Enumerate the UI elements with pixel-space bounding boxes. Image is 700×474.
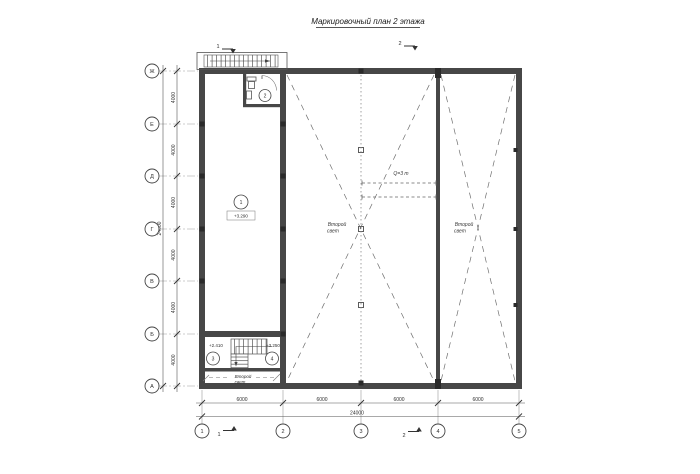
dim-left-1: 4000 [171,92,177,103]
external-stair [197,53,287,70]
toilet-icon [247,77,256,81]
section-mark-1-top: 1 [216,44,235,54]
room-3-number: 3 [212,357,215,363]
section-2-bottom-label: 2 [402,433,405,439]
section-1-top-label: 1 [216,44,219,50]
drawing-sheet: Маркировочный план 2 этажа [0,0,700,474]
crane-capacity-label: Q=3 т [393,171,408,177]
void-cross-braces [287,75,515,381]
section-2-top-label: 2 [398,41,401,47]
dim-bottom-total: 24000 [350,411,364,417]
room-1-marker: 1 +3.290 [227,195,255,220]
wall-second-light-strip [199,368,286,372]
dim-bottom-3: 6000 [393,397,404,403]
dim-left-2: 4000 [171,144,177,155]
wc-room: 2 [243,74,280,107]
second-light-right-line2: свет [454,229,466,235]
room-4-number: 4 [271,357,274,363]
page-title: Маркировочный план 2 этажа [311,17,425,26]
wall-axis4 [436,74,440,383]
axis-label-zh: Ж [149,69,154,75]
dim-left-3: 4000 [171,197,177,208]
axis-label-2: 2 [281,429,284,435]
dim-left-4: 4000 [171,249,177,260]
room-4-level: +3.250 [266,343,280,348]
stair-room: +2.410 3 +3.250 4 [207,339,281,368]
second-light-left-line2: свет [327,229,339,235]
axis-label-5: 5 [517,429,520,435]
room-3-level: +2.410 [209,343,223,348]
dim-left-5: 4000 [171,302,177,313]
axis-label-4: 4 [436,429,439,435]
left-axis-bubbles: Ж Е Д Г В Б А [145,64,159,393]
dim-bottom-1: 6000 [236,397,247,403]
section-1-bottom-label: 1 [217,432,220,438]
axis-label-g: Г [151,227,154,233]
dim-bottom-4: 6000 [472,397,483,403]
wall-stair-room-top [199,331,286,337]
axis-label-v: В [150,279,154,285]
room-1-level: +3.290 [234,214,248,219]
sink-icon [247,91,252,99]
dim-bottom-2: 6000 [316,397,327,403]
second-light-strip-line2: свет [235,380,246,385]
room-1-number: 1 [240,200,243,206]
stair-lower-flight [231,354,248,368]
floor-plan-svg: Маркировочный план 2 этажа [0,0,700,474]
bottom-axis-bubbles: 1 2 3 4 5 [195,424,526,438]
axis-label-3: 3 [359,429,362,435]
left-dimension-chain: 4000 4000 4000 4000 4000 4000 24000 [157,65,180,392]
second-light-left-line1: Второй [328,221,347,228]
second-light-strip-line1: Второй [235,373,252,379]
crane-outline: Q=3 т [362,171,436,200]
axis-label-a: А [150,384,154,390]
axis-label-e: Е [150,122,154,128]
axis-label-b: Б [150,332,154,338]
bottom-dimension-chain: 6000 6000 6000 6000 24000 [196,397,525,420]
section-mark-2-top: 2 [398,41,417,51]
second-light-strip: Второй свет [203,373,280,385]
axis-label-1: 1 [200,429,203,435]
axis-label-d: Д [150,174,154,180]
room-2-number: 2 [264,94,267,100]
section-mark-2-bottom: 2 [402,427,421,439]
second-light-right-line1: Второй [455,221,474,228]
dim-left-6: 4000 [171,354,177,365]
door-swing-arc [262,76,277,91]
section-mark-1-bottom: 1 [217,426,236,438]
